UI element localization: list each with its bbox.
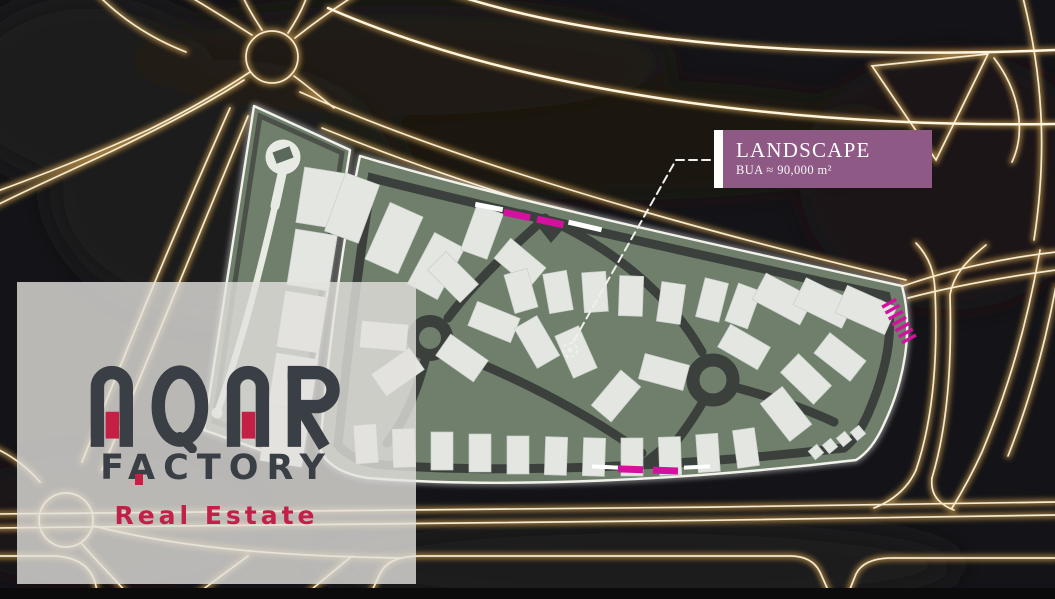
building xyxy=(618,276,643,317)
brand-factory-text: FACTORY xyxy=(17,448,416,488)
landscape-label: LANDSCAPE BUA ≈ 90,000 m² xyxy=(714,130,932,188)
building xyxy=(656,282,685,325)
label-body: LANDSCAPE BUA ≈ 90,000 m² xyxy=(723,130,932,188)
letterbox-strip xyxy=(0,588,1055,599)
masterplan-screenshot: LANDSCAPE BUA ≈ 90,000 m² AQAR FACTORY R… xyxy=(0,0,1055,599)
building xyxy=(544,437,567,476)
factory-red-mark xyxy=(135,474,143,485)
building xyxy=(431,432,453,470)
aqar-logo xyxy=(75,354,357,453)
building xyxy=(469,434,491,472)
building xyxy=(582,438,605,477)
label-bua-value: BUA ≈ 90,000 m² xyxy=(736,163,932,178)
brand-name-text: AQAR xyxy=(17,282,18,283)
building xyxy=(582,271,609,313)
watermark-panel: AQAR FACTORY Real Estate xyxy=(17,282,416,584)
building xyxy=(507,436,529,474)
label-title: LANDSCAPE xyxy=(736,138,932,162)
label-accent-bar xyxy=(714,130,723,188)
brand-tagline-text: Real Estate xyxy=(17,501,416,530)
